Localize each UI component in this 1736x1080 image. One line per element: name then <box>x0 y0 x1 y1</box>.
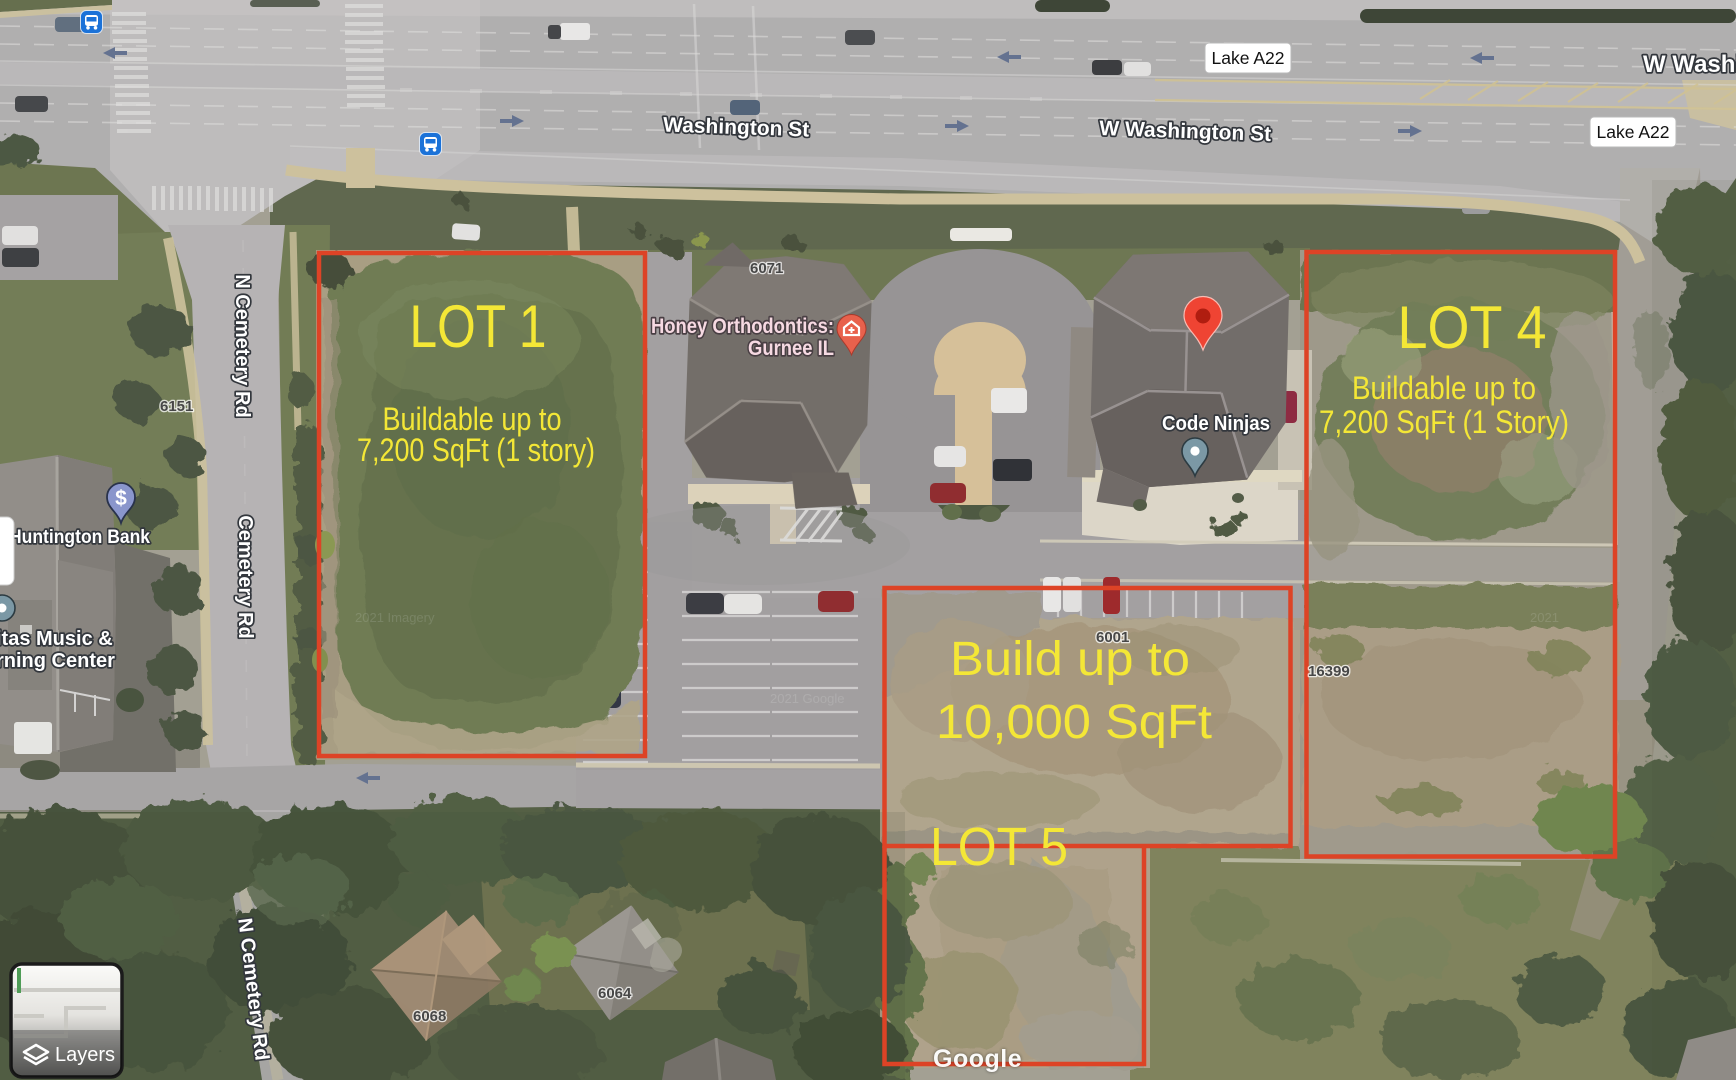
svg-text:6064: 6064 <box>598 985 632 1002</box>
svg-text:7,200 SqFt (1 Story): 7,200 SqFt (1 Story) <box>1319 404 1569 440</box>
svg-text:6151: 6151 <box>160 398 193 415</box>
svg-text:itas Music &: itas Music & <box>0 628 113 650</box>
svg-text:6068: 6068 <box>413 1008 446 1025</box>
svg-text:LOT 1: LOT 1 <box>410 293 547 360</box>
svg-text:N Cemetery Rd: N Cemetery Rd <box>231 274 253 417</box>
svg-text:6001: 6001 <box>1096 629 1129 646</box>
svg-text:16399: 16399 <box>1308 663 1350 680</box>
svg-text:Huntington Bank: Huntington Bank <box>9 526 150 548</box>
svg-text:7,200 SqFt (1 story): 7,200 SqFt (1 story) <box>357 432 595 468</box>
svg-text:Build up to: Build up to <box>950 633 1190 686</box>
svg-text:Code Ninjas: Code Ninjas <box>1162 413 1270 435</box>
svg-text:Lake A22: Lake A22 <box>1212 48 1285 68</box>
svg-text:$: $ <box>115 487 127 510</box>
svg-text:Layers: Layers <box>55 1044 115 1066</box>
svg-text:LOT 4: LOT 4 <box>1398 294 1547 361</box>
svg-text:LOT 5: LOT 5 <box>930 817 1068 877</box>
svg-text:Buildable up to: Buildable up to <box>1352 370 1536 406</box>
svg-text:10,000 SqFt: 10,000 SqFt <box>936 696 1212 749</box>
svg-text:2021 Imagery: 2021 Imagery <box>355 610 435 625</box>
svg-text:Honey Orthodontics:: Honey Orthodontics: <box>651 315 834 338</box>
svg-text:2021: 2021 <box>1530 610 1559 625</box>
svg-text:rning Center: rning Center <box>0 650 115 672</box>
svg-text:6071: 6071 <box>750 260 783 277</box>
svg-text:2021 Google: 2021 Google <box>770 691 844 706</box>
svg-text:Gurnee IL: Gurnee IL <box>748 337 834 360</box>
svg-text:Cemetery Rd: Cemetery Rd <box>234 515 256 638</box>
svg-text:Lake A22: Lake A22 <box>1597 122 1670 142</box>
svg-text:W Washin: W Washin <box>1643 51 1736 78</box>
svg-text:Google: Google <box>933 1045 1022 1073</box>
